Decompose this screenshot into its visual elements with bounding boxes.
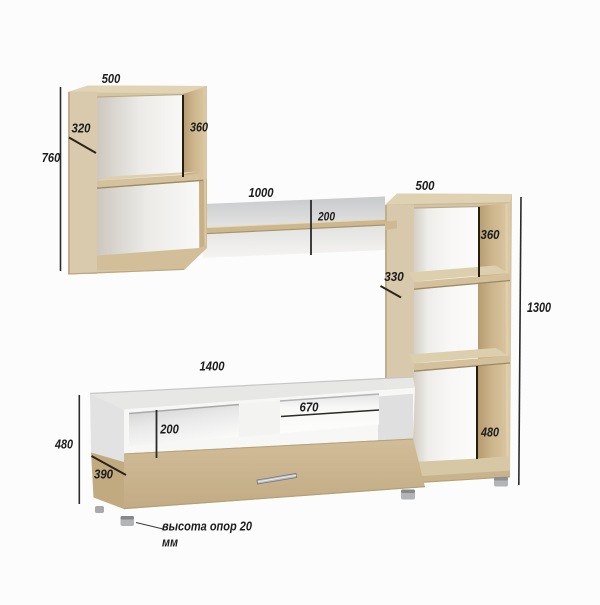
svg-text:500: 500 — [416, 178, 436, 193]
svg-text:1400: 1400 — [200, 360, 225, 374]
svg-text:200: 200 — [159, 423, 178, 437]
svg-text:мм: мм — [162, 535, 178, 550]
svg-text:1000: 1000 — [249, 186, 274, 200]
svg-text:200: 200 — [317, 210, 335, 224]
svg-text:320: 320 — [72, 121, 92, 136]
svg-text:480: 480 — [54, 437, 73, 452]
svg-text:360: 360 — [481, 227, 501, 242]
svg-text:высота опор 20: высота опор 20 — [162, 519, 253, 534]
svg-text:390: 390 — [94, 467, 114, 482]
svg-text:1300: 1300 — [527, 300, 551, 315]
svg-text:670: 670 — [300, 400, 320, 415]
svg-text:360: 360 — [190, 120, 209, 135]
svg-text:480: 480 — [480, 425, 499, 440]
svg-text:330: 330 — [384, 269, 404, 284]
svg-text:760: 760 — [42, 150, 61, 165]
svg-text:500: 500 — [102, 71, 121, 86]
